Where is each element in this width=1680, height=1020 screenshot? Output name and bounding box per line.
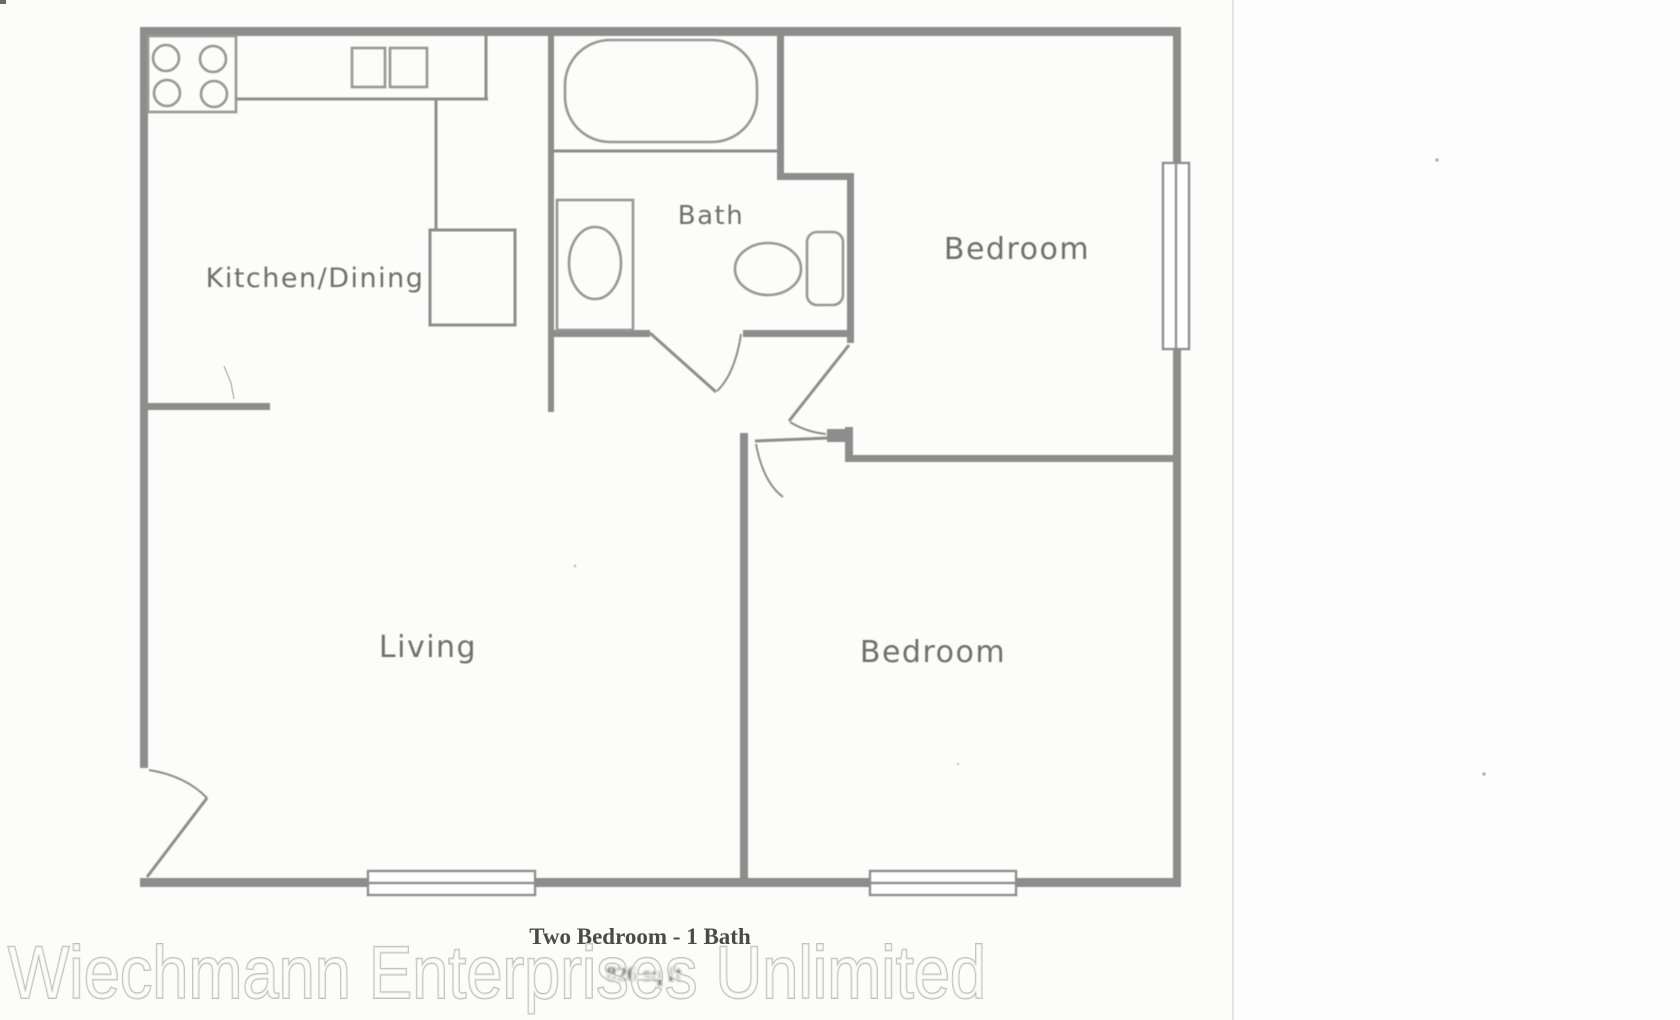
- wall-left: [140, 27, 148, 768]
- wall-top: [140, 27, 1181, 36]
- wall-living-divider: [740, 433, 748, 887]
- wall-bath-bottom-right: [743, 330, 854, 337]
- wall-bath-jog: [777, 173, 854, 180]
- wall-bath-right-upper: [777, 27, 784, 177]
- wall-bottom: [140, 878, 1181, 887]
- company-watermark: Wiechmann Enterprises Unlimited: [8, 931, 986, 1014]
- room-label-living: Living: [379, 630, 477, 665]
- corner-speck: [0, 0, 6, 4]
- wall-kitchen-stub: [140, 403, 270, 410]
- speck: [1435, 158, 1439, 162]
- speck: [574, 565, 577, 568]
- wall-bedroom-top-left: [847, 177, 854, 343]
- floor-plan-scan: Kitchen/Dining Bath Bedroom Living Bedro…: [0, 0, 1680, 1020]
- window-living: [368, 871, 535, 895]
- right-blank-panel: [1234, 0, 1680, 1020]
- speck: [957, 763, 960, 766]
- wall-bath-left: [548, 27, 554, 412]
- wall-bedrooms-divider: [845, 455, 1173, 462]
- wall-door-stub: [827, 429, 846, 442]
- window-bedroom-bottom: [870, 871, 1016, 895]
- room-label-kitchen-dining: Kitchen/Dining: [206, 263, 425, 294]
- wall-right: [1173, 27, 1181, 887]
- room-label-bath: Bath: [678, 201, 744, 231]
- window-bedroom-top: [1163, 163, 1189, 349]
- room-label-bedroom-top: Bedroom: [944, 232, 1090, 267]
- room-label-bedroom-bottom: Bedroom: [860, 635, 1006, 670]
- speck: [1482, 772, 1486, 776]
